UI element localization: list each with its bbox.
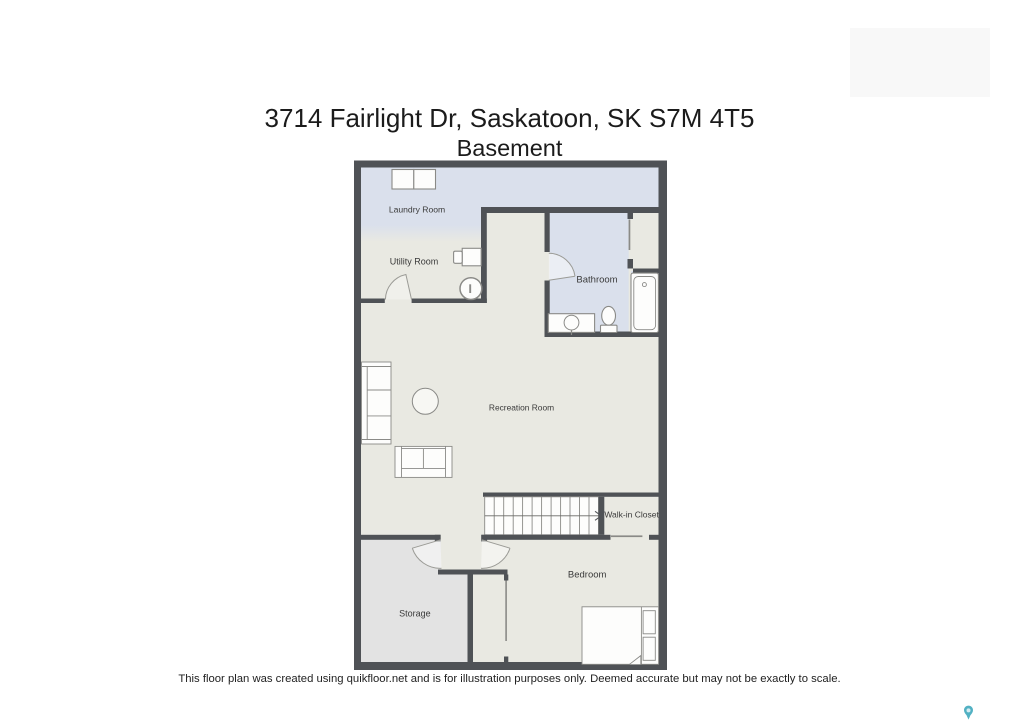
svg-text:Bedroom: Bedroom xyxy=(568,570,607,581)
svg-text:Walk-in Closet: Walk-in Closet xyxy=(604,509,659,519)
svg-text:Recreation Room: Recreation Room xyxy=(489,402,554,412)
svg-text:Storage: Storage xyxy=(399,609,431,619)
svg-text:Utility Room: Utility Room xyxy=(390,257,439,267)
svg-text:Laundry Room: Laundry Room xyxy=(389,205,445,215)
svg-text:Bathroom: Bathroom xyxy=(576,275,617,286)
